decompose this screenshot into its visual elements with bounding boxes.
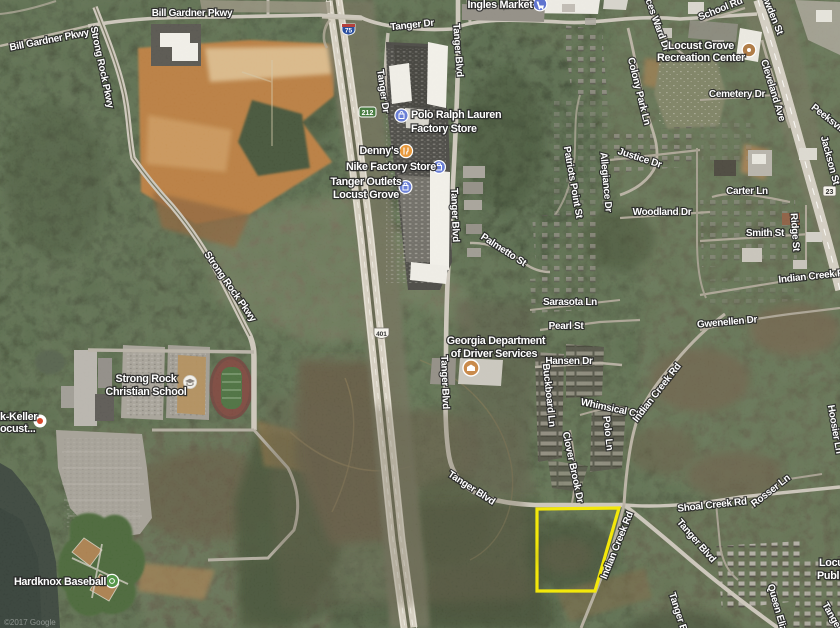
svg-text:Sarasota Ln: Sarasota Ln [543,297,597,308]
svg-text:Locus: Locus [819,557,840,569]
svg-text:Pearl St: Pearl St [549,321,585,332]
svg-text:Factory Store: Factory Store [411,123,477,135]
svg-text:Hardknox Baseball: Hardknox Baseball [14,576,106,588]
svg-text:Cemetery Dr: Cemetery Dr [709,89,766,100]
svg-text:23: 23 [826,189,834,196]
svg-text:Nike Factory Store: Nike Factory Store [346,161,436,173]
svg-text:Tanger Blvd: Tanger Blvd [448,188,461,242]
svg-text:Publi: Publi [817,570,840,582]
svg-text:Polo Ralph Lauren: Polo Ralph Lauren [411,109,501,121]
svg-text:Carter Ln: Carter Ln [726,186,768,197]
svg-text:ocust...: ocust... [0,423,36,435]
svg-text:Woodland Dr: Woodland Dr [633,207,692,218]
svg-text:Denny's: Denny's [360,145,400,157]
svg-text:401: 401 [376,331,387,338]
svg-text:Christian School: Christian School [106,386,187,398]
svg-text:Locust Grove: Locust Grove [668,40,734,52]
svg-text:212: 212 [362,110,374,117]
svg-text:Smith St: Smith St [746,228,785,239]
svg-text:of Driver Services: of Driver Services [451,348,538,360]
svg-text:Bill Gardner Pkwy: Bill Gardner Pkwy [152,8,233,19]
svg-text:Tanger Outlets: Tanger Outlets [330,176,401,188]
svg-text:Locust Grove: Locust Grove [333,189,399,201]
svg-text:75: 75 [345,28,353,35]
svg-text:Recreation Center: Recreation Center [657,52,746,64]
svg-text:Georgia Department: Georgia Department [447,335,546,347]
svg-text:Hansen Dr: Hansen Dr [545,356,593,367]
svg-text:©2017 Google: ©2017 Google [4,618,56,627]
svg-text:Tanger Blvd: Tanger Blvd [438,355,451,409]
svg-text:k-Keller: k-Keller [0,411,38,423]
svg-text:Strong Rock: Strong Rock [116,373,178,385]
svg-text:Ingles Market: Ingles Market [467,0,533,11]
